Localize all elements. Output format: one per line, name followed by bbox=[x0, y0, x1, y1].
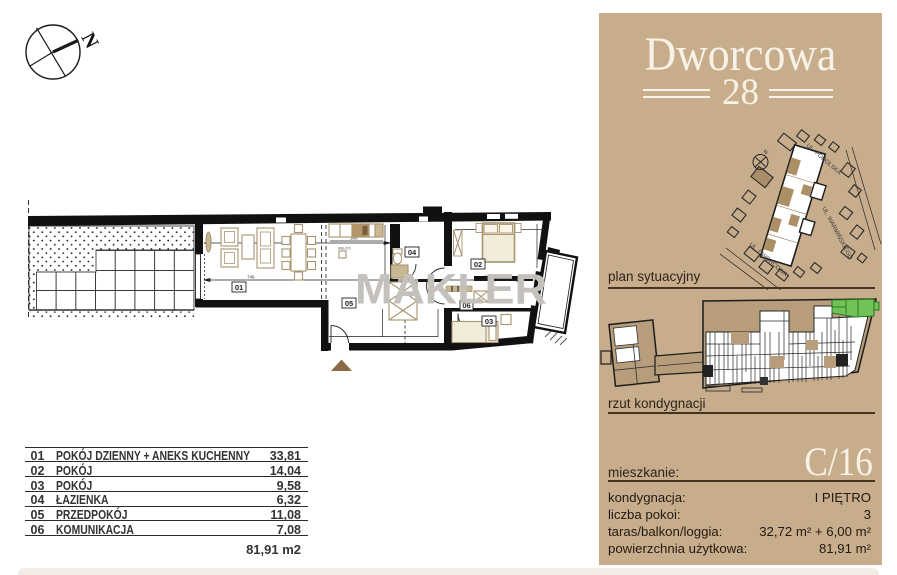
svg-text:05: 05 bbox=[345, 299, 353, 308]
svg-text:03: 03 bbox=[485, 317, 493, 326]
svg-text:04: 04 bbox=[408, 248, 417, 257]
svg-text:746: 746 bbox=[247, 275, 255, 280]
svg-text:N: N bbox=[77, 29, 103, 53]
svg-text:UL. WARMIŃSKIEGO: UL. WARMIŃSKIEGO bbox=[820, 206, 854, 261]
svg-text:01: 01 bbox=[235, 283, 243, 292]
svg-text:MAKLER: MAKLER bbox=[355, 266, 547, 314]
svg-text:KBL/CO: KBL/CO bbox=[338, 247, 351, 251]
